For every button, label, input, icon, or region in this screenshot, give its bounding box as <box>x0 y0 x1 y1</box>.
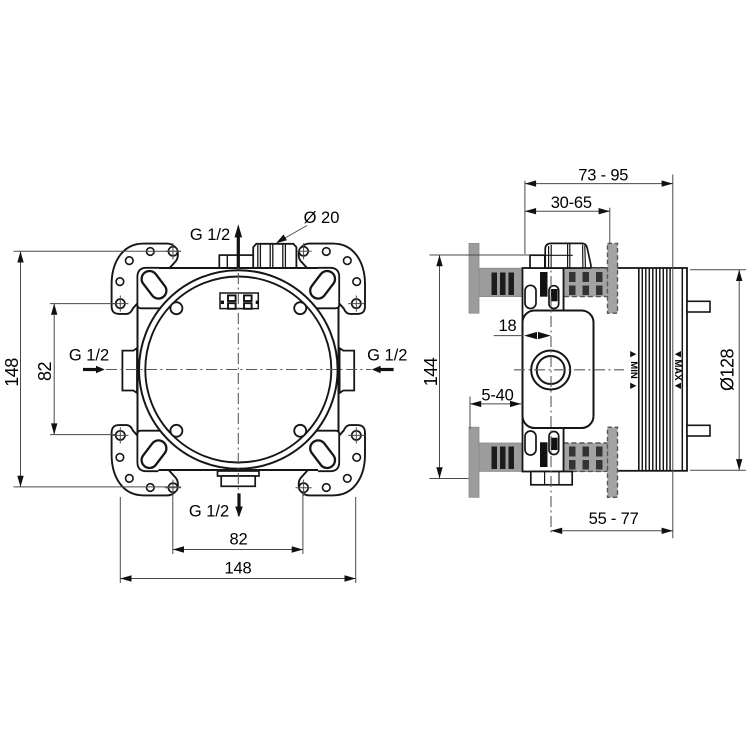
svg-text:G 1/2: G 1/2 <box>367 347 407 365</box>
svg-text:30-65: 30-65 <box>551 194 592 212</box>
svg-text:Ø 20: Ø 20 <box>304 209 340 227</box>
svg-text:18: 18 <box>499 317 517 335</box>
svg-text:G 1/2: G 1/2 <box>189 503 229 521</box>
svg-text:55 - 77: 55 - 77 <box>589 510 639 528</box>
svg-text:73 - 95: 73 - 95 <box>578 166 628 184</box>
svg-text:148: 148 <box>2 358 22 387</box>
svg-text:144: 144 <box>421 357 441 386</box>
svg-text:148: 148 <box>225 560 252 578</box>
svg-text:G 1/2: G 1/2 <box>190 226 230 244</box>
svg-text:82: 82 <box>230 531 248 549</box>
svg-text:MIN: MIN <box>628 361 639 379</box>
svg-text:5-40: 5-40 <box>481 387 513 405</box>
svg-text:82: 82 <box>35 362 55 382</box>
svg-text:Ø128: Ø128 <box>718 349 738 392</box>
svg-text:G 1/2: G 1/2 <box>69 347 109 365</box>
svg-text:MAX: MAX <box>672 359 683 381</box>
